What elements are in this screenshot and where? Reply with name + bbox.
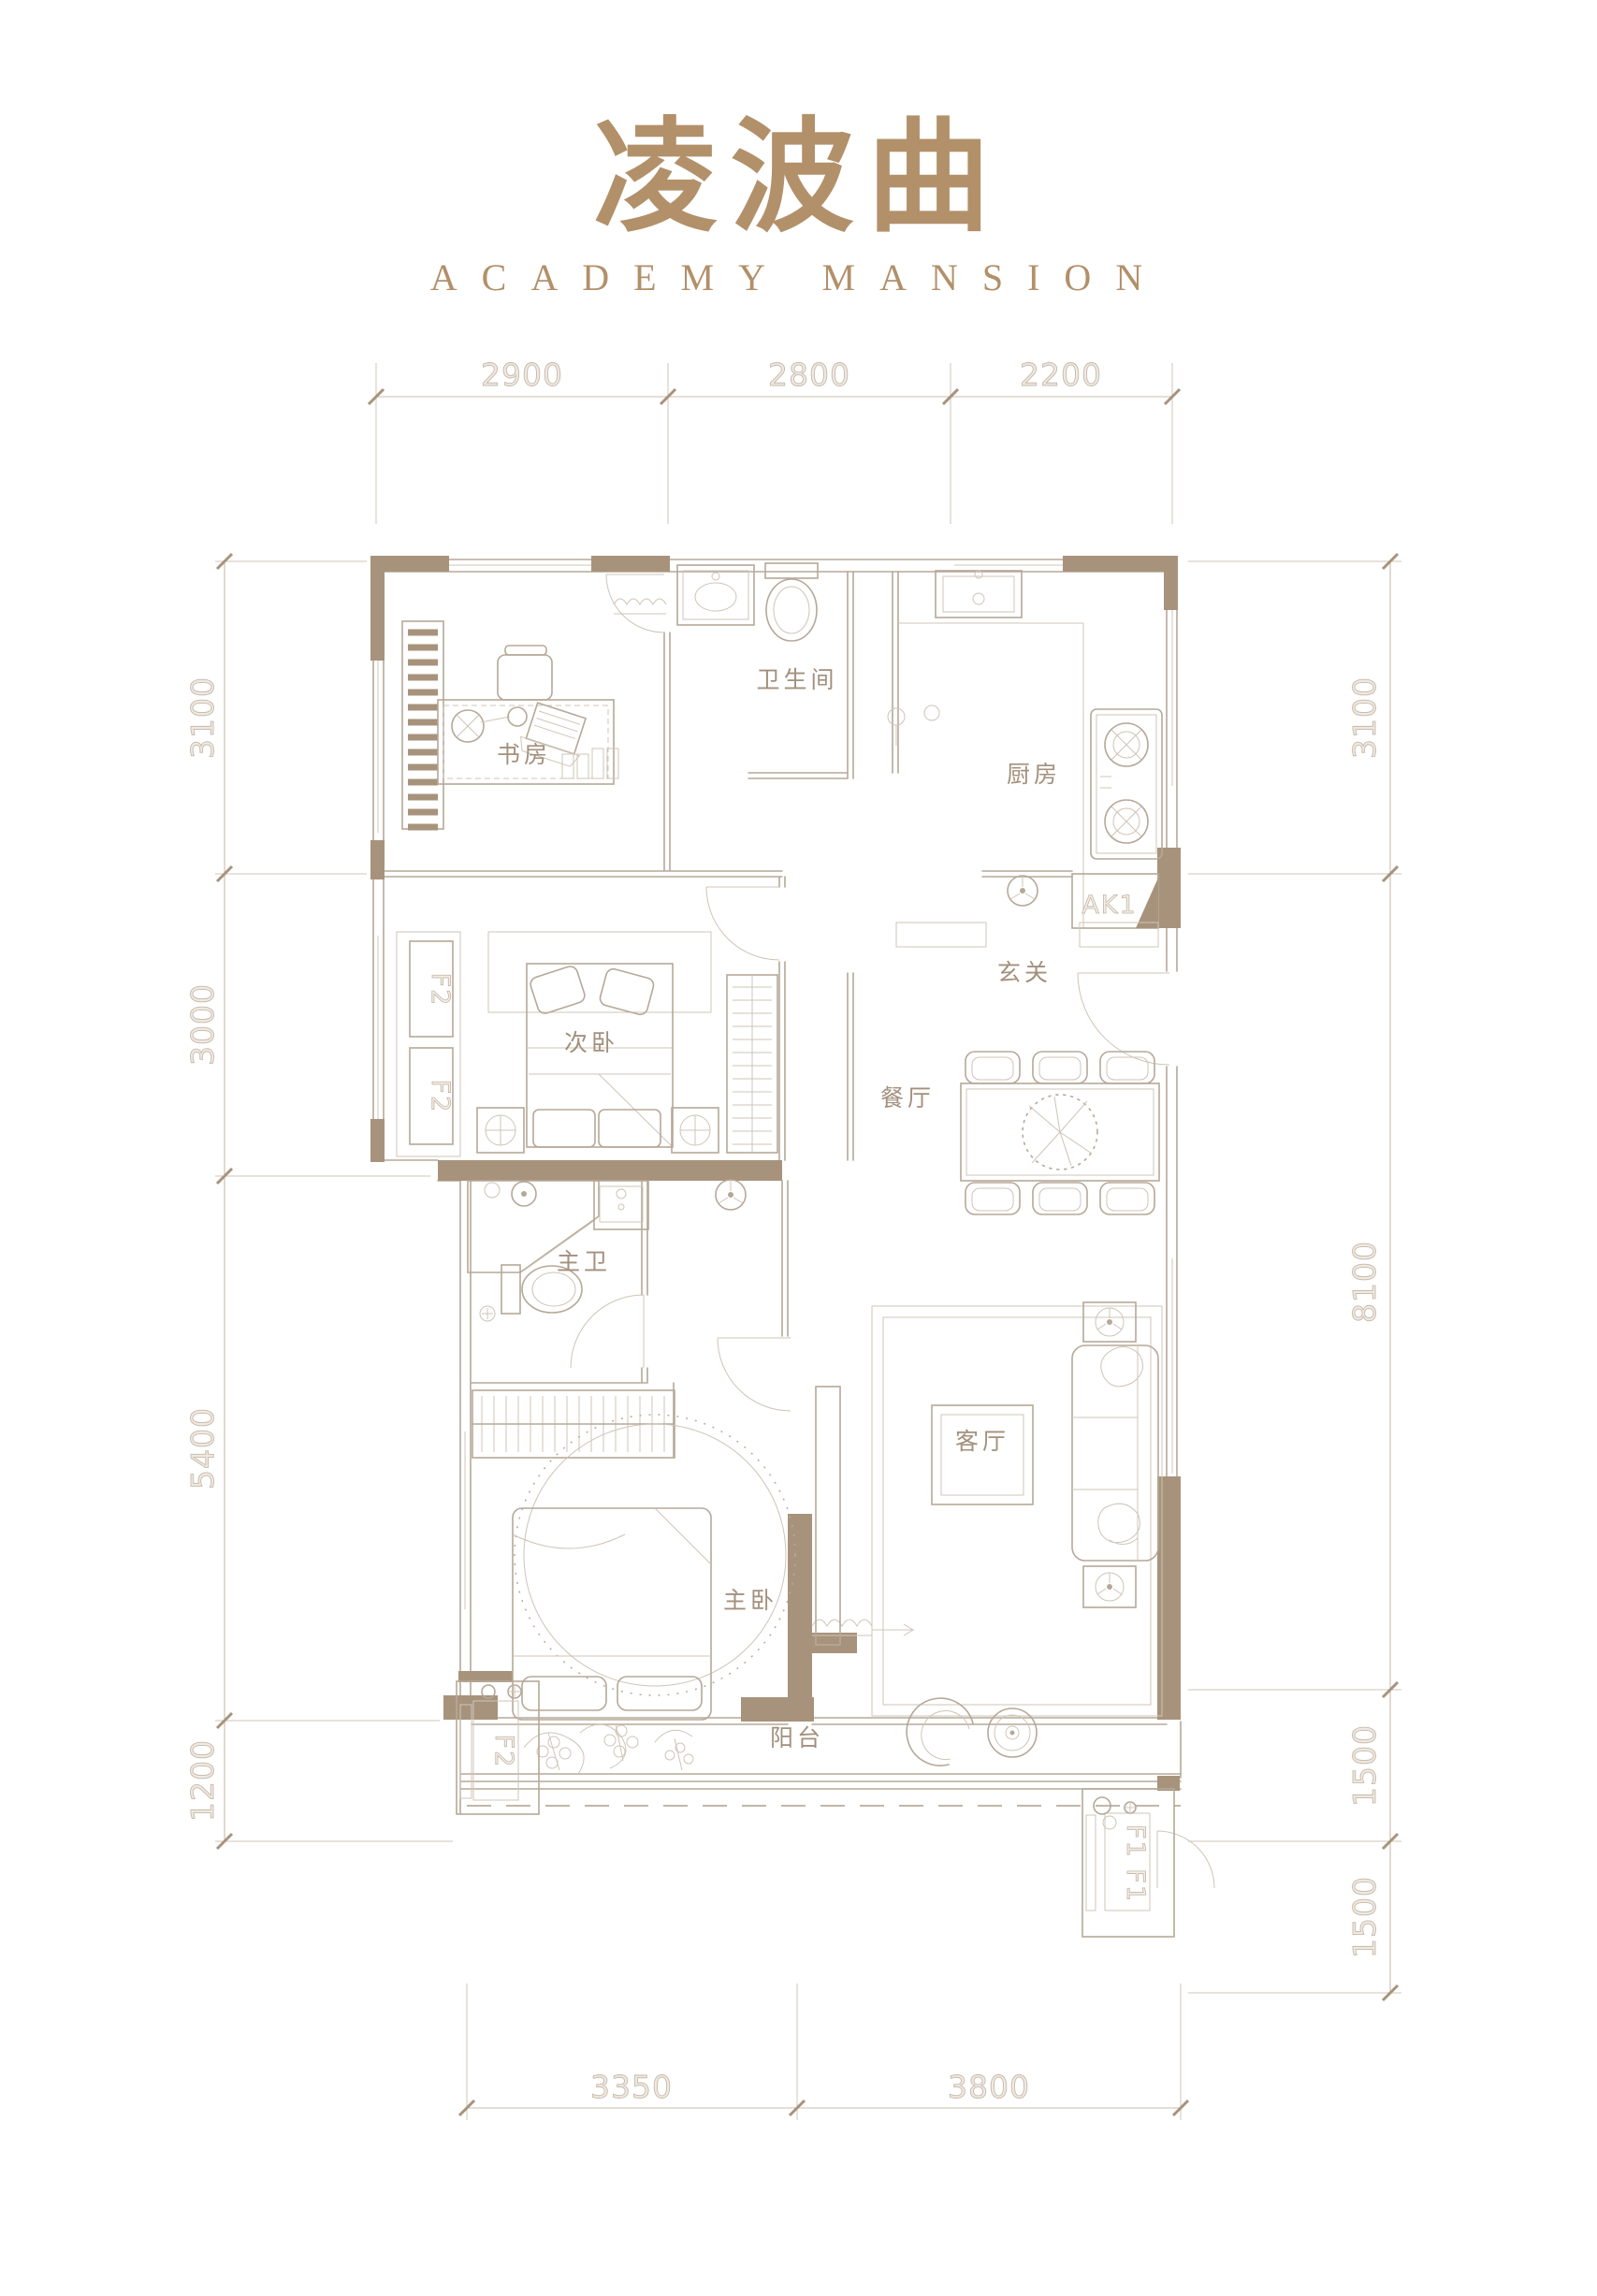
- room-bathroom: 卫生间: [677, 563, 838, 693]
- tv-cabinet: [816, 1387, 840, 1645]
- dim-right-1500b: 1500: [1346, 1876, 1383, 1958]
- nightstand-left: [477, 1108, 524, 1153]
- dim-left-3000: 3000: [184, 983, 221, 1066]
- room-label-balcony: 阳台: [770, 1724, 824, 1751]
- nightstand-right: [672, 1108, 719, 1153]
- page-title: 凌波曲: [0, 110, 1597, 246]
- master-bedroom-door-arc: [718, 1338, 791, 1411]
- f2-label-b: F2: [426, 1080, 455, 1114]
- sofa-plant-top: [1101, 1346, 1143, 1386]
- kitchen-fan-icon: [1008, 876, 1038, 906]
- floor-plan-page: 凌波曲 ACADEMY MANSION 2900 2800 2200 3100: [0, 0, 1597, 2296]
- round-rug: [524, 1424, 786, 1686]
- room-entry-dining: 玄关 餐厅: [880, 923, 1159, 1214]
- dim-left-5400: 5400: [184, 1407, 221, 1489]
- room-label-master-bath: 主卫: [557, 1248, 611, 1275]
- living-rug: [872, 1306, 1162, 1716]
- sofa: [1072, 1345, 1158, 1561]
- study-radiator: [408, 632, 438, 827]
- room-study: 书房: [402, 621, 618, 829]
- page-subtitle: ACADEMY MANSION: [0, 255, 1597, 299]
- bathroom-sink: [677, 565, 754, 625]
- balcony-flowers: [524, 1723, 693, 1774]
- room-label-study: 书房: [497, 741, 551, 768]
- master-bath-sink: [594, 1181, 648, 1229]
- plan-header: 凌波曲 ACADEMY MANSION: [0, 110, 1597, 299]
- room-label-dining: 餐厅: [880, 1084, 935, 1112]
- balcony-chair: [907, 1698, 973, 1766]
- dim-bottom-3350: 3350: [590, 2069, 673, 2105]
- dim-bottom-3800: 3800: [948, 2069, 1030, 2105]
- dim-top-2200: 2200: [1020, 356, 1102, 393]
- room-label-kitchen: 厨房: [1007, 761, 1061, 788]
- walls: [370, 556, 1181, 1813]
- dim-left-1200: 1200: [184, 1739, 221, 1822]
- kitchen-fixture-icon: [888, 708, 905, 725]
- manifold-icon: [716, 1180, 746, 1210]
- dining-chairs-bottom: [965, 1183, 1154, 1214]
- room-master-bedroom: 主卧: [513, 1415, 795, 1720]
- kitchen-stove: [1091, 709, 1162, 859]
- f2-label-c: F2: [489, 1735, 518, 1769]
- dim-right-3100: 3100: [1346, 676, 1383, 759]
- dim-left-3100: 3100: [184, 676, 221, 759]
- room-label-master-bedroom: 主卧: [723, 1587, 777, 1614]
- room-label-second-bedroom: 次卧: [564, 1029, 618, 1056]
- sofa-plant-bottom: [1098, 1504, 1140, 1544]
- dimension-annotations: 2900 2800 2200 3100 3000 5400 1200 3100 …: [184, 356, 1401, 2120]
- master-bath-door-arc: [571, 1295, 644, 1368]
- dim-top-2900: 2900: [481, 356, 563, 393]
- dim-right-1500a: 1500: [1346, 1724, 1383, 1807]
- f2-label-a: F2: [426, 973, 455, 1008]
- kitchen-drain-icon: [924, 705, 939, 720]
- study-door-arc: [606, 574, 664, 632]
- dim-right-8100: 8100: [1346, 1241, 1383, 1323]
- side-table-bottom: [1083, 1566, 1136, 1607]
- room-label-bathroom: 卫生间: [756, 666, 837, 693]
- room-label-living: 客厅: [955, 1428, 1009, 1455]
- ak1-label: AK1: [1082, 891, 1137, 920]
- coffee-table: [932, 1405, 1033, 1504]
- floor-plan-drawing: 2900 2800 2200 3100 3000 5400 1200 3100 …: [0, 0, 1597, 2296]
- dim-top-2800: 2800: [768, 356, 850, 393]
- f1-unit: F1 F1: [1082, 1789, 1174, 1937]
- study-coil-symbol: [614, 599, 666, 614]
- bathroom-toilet: [765, 563, 818, 641]
- second-bedroom-radiator: [727, 975, 777, 1153]
- f1-label: F1 F1: [1121, 1824, 1150, 1903]
- second-bedroom-door-arc: [706, 887, 779, 960]
- room-kitchen: AK1 厨房: [888, 571, 1162, 928]
- study-chair: [498, 655, 552, 700]
- side-table-top: [1083, 1302, 1136, 1342]
- dining-chairs-top: [965, 1052, 1154, 1083]
- study-lamp: [452, 707, 527, 742]
- room-label-entry: 玄关: [997, 959, 1052, 986]
- room-living: 客厅: [816, 1302, 1162, 1716]
- entry-cabinet: [896, 923, 986, 947]
- storage-door-arc: [1157, 1831, 1214, 1888]
- round-rug-fringe: [515, 1415, 795, 1695]
